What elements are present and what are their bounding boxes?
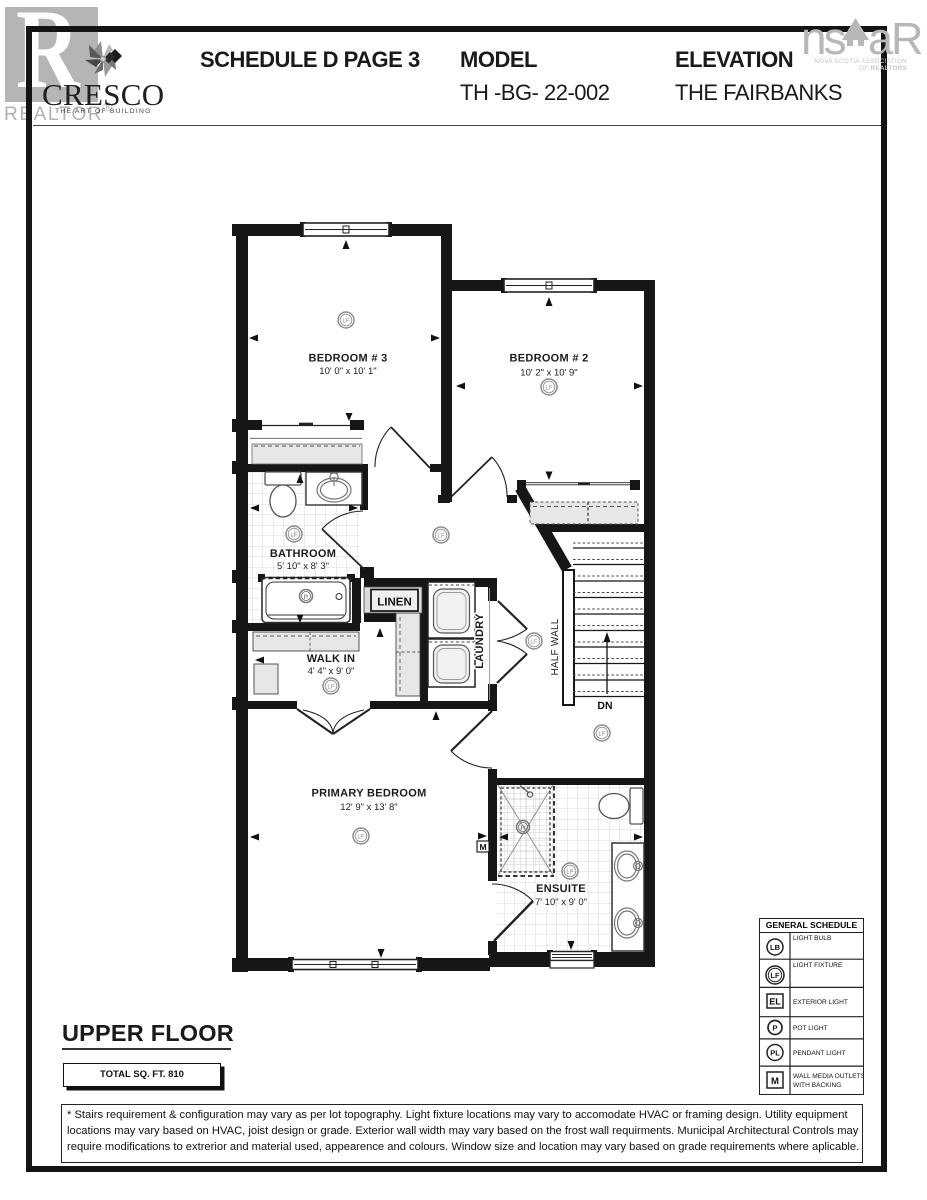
svg-text:WALK IN: WALK IN: [307, 653, 356, 665]
svg-text:M: M: [479, 842, 486, 852]
svg-text:EXTERIOR LIGHT: EXTERIOR LIGHT: [793, 999, 848, 1006]
svg-text:PENDANT LIGHT: PENDANT LIGHT: [793, 1050, 846, 1057]
svg-text:WALL MEDIA OUTLETS: WALL MEDIA OUTLETS: [793, 1073, 863, 1080]
svg-text:POT LIGHT: POT LIGHT: [793, 1025, 828, 1032]
svg-text:LF: LF: [598, 731, 605, 738]
svg-text:LF: LF: [770, 971, 780, 980]
svg-text:LF: LF: [357, 834, 364, 841]
svg-text:LF: LF: [566, 869, 573, 876]
svg-text:BEDROOM # 2: BEDROOM # 2: [509, 353, 588, 365]
svg-text:7' 10" x 9' 0": 7' 10" x 9' 0": [535, 897, 587, 908]
svg-text:12' 9" x 13' 8": 12' 9" x 13' 8": [340, 802, 397, 813]
svg-text:M: M: [771, 1076, 779, 1087]
svg-text:5' 10" x 8' 3": 5' 10" x 8' 3": [277, 561, 329, 572]
svg-text:PRIMARY BEDROOM: PRIMARY BEDROOM: [311, 788, 426, 800]
svg-text:LF: LF: [290, 532, 297, 539]
svg-text:LIGHT BULB: LIGHT BULB: [793, 935, 832, 942]
svg-text:LF: LF: [437, 533, 444, 540]
svg-text:LB: LB: [770, 943, 781, 952]
svg-text:ENSUITE: ENSUITE: [536, 883, 586, 895]
svg-text:LF: LF: [530, 639, 537, 646]
svg-text:BATHROOM: BATHROOM: [270, 548, 336, 560]
svg-text:EL: EL: [769, 997, 781, 1007]
svg-text:DN: DN: [597, 700, 612, 712]
svg-text:P: P: [304, 594, 308, 601]
svg-text:P: P: [521, 825, 525, 832]
svg-text:PL: PL: [770, 1049, 780, 1058]
svg-text:BEDROOM # 3: BEDROOM # 3: [308, 353, 387, 365]
svg-text:HALF WALL: HALF WALL: [550, 618, 561, 675]
svg-text:LINEN: LINEN: [377, 597, 412, 609]
svg-text:LF: LF: [545, 385, 552, 392]
svg-text:WITH BACKING: WITH BACKING: [793, 1082, 841, 1089]
svg-text:4' 4" x 9' 0": 4' 4" x 9' 0": [308, 666, 355, 677]
svg-text:10' 2" x 10' 9": 10' 2" x 10' 9": [520, 368, 577, 379]
svg-text:LF: LF: [342, 318, 349, 325]
svg-text:LAUNDRY: LAUNDRY: [474, 613, 486, 669]
svg-text:10' 0" x 10' 1": 10' 0" x 10' 1": [319, 366, 376, 377]
svg-text:LIGHT FIXTURE: LIGHT FIXTURE: [793, 962, 843, 969]
svg-text:P: P: [772, 1024, 777, 1033]
svg-text:LF: LF: [327, 684, 334, 691]
